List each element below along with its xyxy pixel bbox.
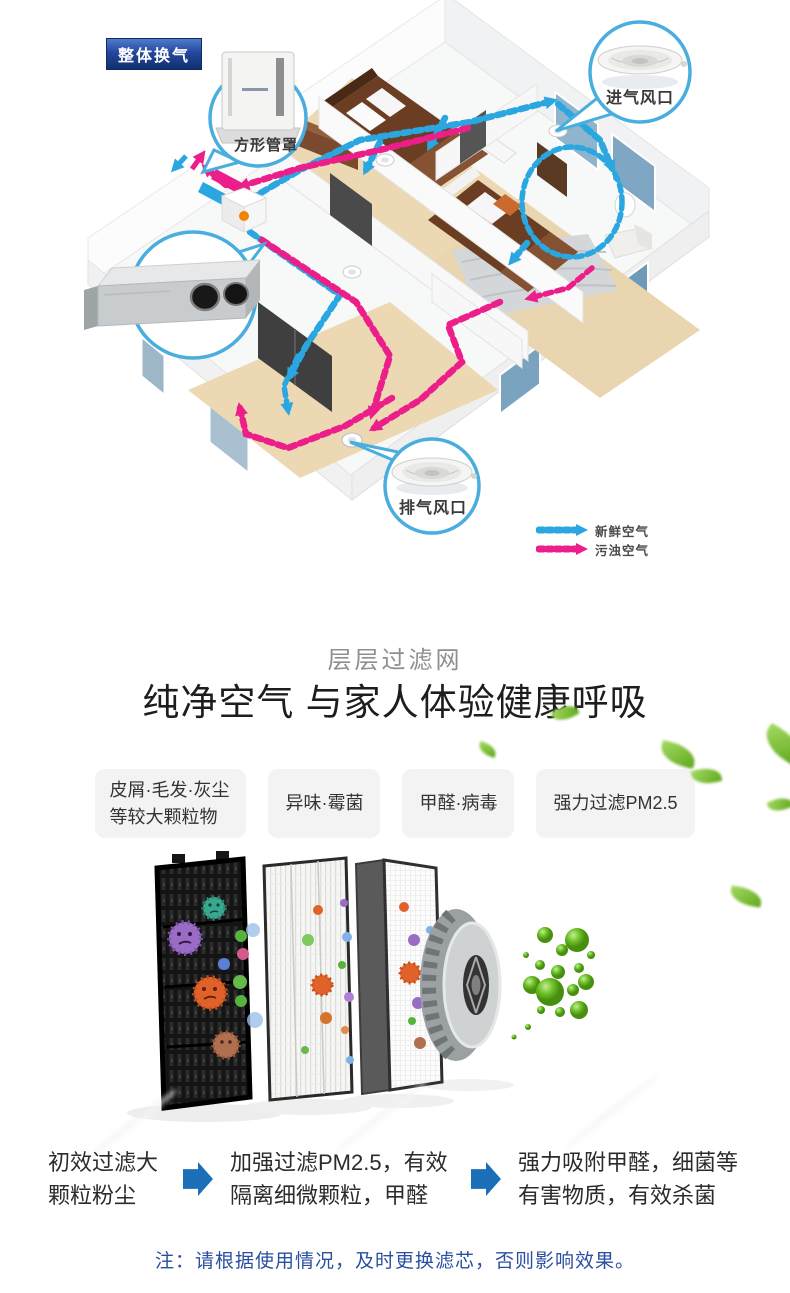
legend-fresh-air-label: 新鲜空气 xyxy=(595,521,649,540)
tag-formaldehyde-virus: 甲醛·病毒 xyxy=(402,769,514,838)
leaf-decoration xyxy=(658,740,698,769)
exhaust-vent-label: 排气风口 xyxy=(395,494,471,518)
diagram-badge: 整体换气 xyxy=(106,38,202,70)
fan-wheel xyxy=(420,909,500,1061)
clean-air-bubbles xyxy=(512,927,596,1040)
tag-pm25: 强力过滤PM2.5 xyxy=(536,769,694,838)
filter-subtitle: 层层过滤网 xyxy=(0,640,790,675)
pollutant-tags: 皮屑·毛发·灰尘 等较大颗粒物 异味·霉菌 甲醛·病毒 强力过滤PM2.5 xyxy=(0,769,790,838)
duct-port xyxy=(191,284,219,310)
wall-vent xyxy=(615,193,635,217)
tag-particles: 皮屑·毛发·灰尘 等较大颗粒物 xyxy=(95,769,246,838)
step-2: 加强过滤PM2.5，有效 隔离细微颗粒，甲醛 xyxy=(230,1146,454,1212)
duct-cover-label: 方形管罩 xyxy=(218,134,314,155)
step-1: 初效过滤大 颗粒粉尘 xyxy=(48,1146,166,1212)
legend-polluted-air-label: 污浊空气 xyxy=(595,540,649,559)
duct-port xyxy=(224,283,248,305)
step-3: 强力吸附甲醛，细菌等 有害物质，有效杀菌 xyxy=(518,1146,742,1212)
filtration-steps: 初效过滤大 颗粒粉尘 加强过滤PM2.5，有效 隔离细微颗粒，甲醛 强力吸附甲醛… xyxy=(0,1146,790,1212)
tag-odor-mold: 异味·霉菌 xyxy=(268,769,380,838)
callout-intake-vent xyxy=(556,22,690,131)
step-arrow-icon xyxy=(183,1162,213,1196)
legend-polluted-air: 污浊空气 xyxy=(536,541,649,557)
leaf-decoration xyxy=(759,723,790,766)
indicator-dot xyxy=(239,211,249,221)
step-arrow-icon xyxy=(471,1162,501,1196)
ventilation-diagram-section: 整体换气 方形管罩 进气风口 排气风口 新鲜空气 污浊空气 xyxy=(0,0,790,595)
usage-note: 注：请根据使用情况，及时更换滤芯，否则影响效果。 xyxy=(0,1246,790,1273)
intake-vent-label: 进气风口 xyxy=(600,84,680,108)
pleated-filter xyxy=(264,858,354,1100)
filter-title: 纯净空气 与家人体验健康呼吸 xyxy=(0,672,790,726)
legend-fresh-air: 新鲜空气 xyxy=(536,522,649,538)
polluted-air-arrow-icon xyxy=(536,543,588,555)
leaf-decoration xyxy=(477,741,499,758)
fresh-air-arrow-icon xyxy=(536,524,588,536)
brand-mark xyxy=(242,88,268,91)
